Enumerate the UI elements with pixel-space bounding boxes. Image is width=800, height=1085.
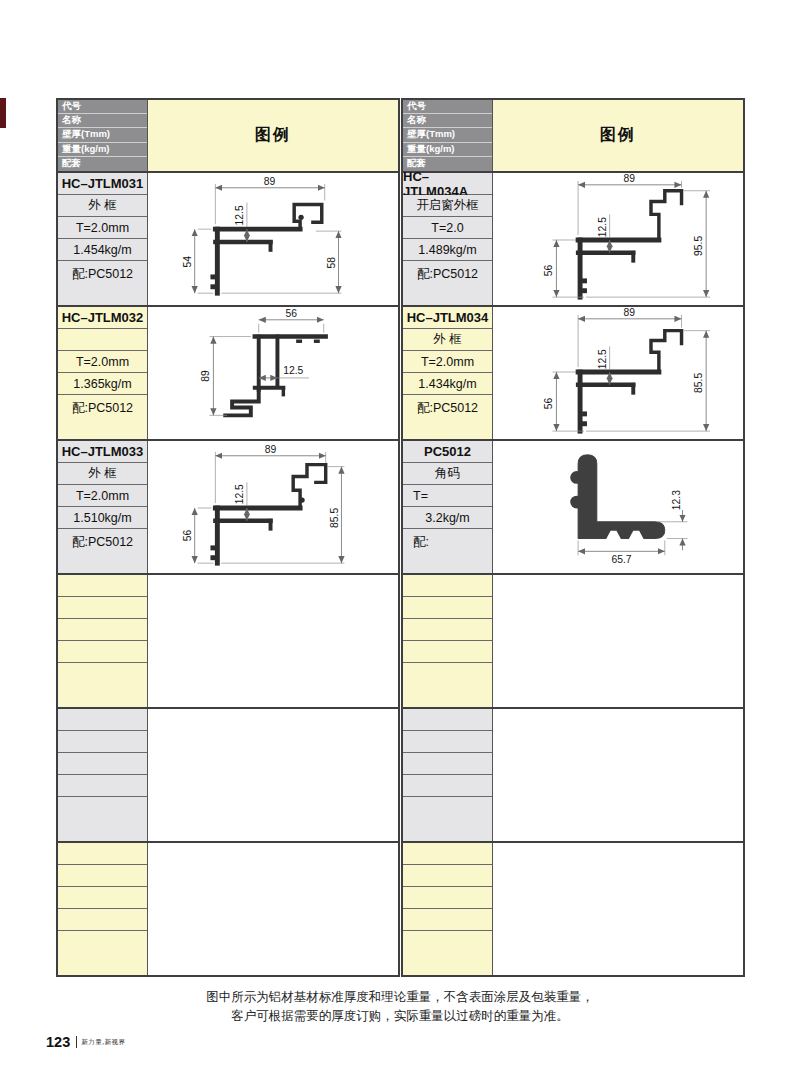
- dim-inner-value: 12.5: [597, 349, 608, 369]
- dim-bottom-value: 65.7: [611, 554, 631, 565]
- dim-top-value: 89: [624, 307, 636, 318]
- footer-divider: [76, 1036, 77, 1048]
- header-row-code: 代号: [58, 100, 147, 114]
- dim-left-value: 89: [200, 370, 211, 382]
- product-weight: 1.454kg/m: [58, 239, 147, 261]
- profile-drawing-hc-jtlm033: 89 56 85.5: [148, 441, 398, 573]
- product-name: 角码: [403, 463, 492, 485]
- empty-block: [58, 707, 398, 841]
- product-match: 配:PC5012: [58, 395, 147, 439]
- product-block-hc-jtlm031: HC–JTLM031 外 框 T=2.0mm 1.454kg/m 配:PC501…: [58, 171, 398, 305]
- profile-drawing-hc-jtlm034a: 89 56 95.5: [493, 173, 743, 305]
- legend-cell: 图例: [148, 100, 398, 171]
- dim-left-value: 56: [543, 265, 554, 277]
- empty-block: [58, 841, 398, 975]
- profile-drawing-hc-jtlm034: 89 56 85.5: [493, 307, 743, 439]
- header-row-code: 代号: [403, 100, 492, 114]
- dim-top-value: 89: [264, 176, 276, 187]
- product-code: HC–JTLM032: [58, 307, 147, 329]
- product-name: 外 框: [58, 195, 147, 217]
- dim-left-value: 56: [543, 398, 554, 410]
- dim-right-value: 95.5: [693, 236, 704, 256]
- profile-drawing-hc-jtlm031: 89 54 58: [148, 173, 398, 305]
- header-row-name: 名称: [58, 114, 147, 128]
- dim-top-value: 89: [265, 444, 277, 455]
- dim-left-value: 56: [182, 530, 193, 542]
- product-name: 外 框: [403, 329, 492, 351]
- product-weight: 3.2kg/m: [403, 507, 492, 529]
- dim-inner-value: 12.5: [234, 484, 245, 504]
- dim-right-value: 85.5: [329, 508, 340, 528]
- product-code: HC–JTLM033: [58, 441, 147, 463]
- product-code: HC–JTLM034A: [403, 173, 492, 195]
- profile-table-right: 代号 名称 壁厚(Tmm) 重量(kg/m) 配套 图例 HC–JTLM034A…: [401, 98, 745, 977]
- product-name: 外 框: [58, 463, 147, 485]
- header-row-thickness: 壁厚(Tmm): [403, 128, 492, 142]
- product-weight: 1.365kg/m: [58, 373, 147, 395]
- page-footer: 123 新力量,新视界: [46, 1034, 126, 1050]
- product-match: 配:PC5012: [58, 529, 147, 573]
- footer-note: 图中所示为铝材基材标准厚度和理论重量，不含表面涂层及包装重量， 客户可根据需要的…: [0, 988, 800, 1027]
- legend-cell: 图例: [493, 100, 743, 171]
- header-row-weight: 重量(kg/m): [58, 143, 147, 157]
- product-thickness: T=2.0mm: [58, 351, 147, 373]
- profile-drawing-pc5012: 65.7 12.3: [493, 441, 743, 573]
- dim-top-value: 89: [624, 173, 636, 184]
- product-weight: 1.434kg/m: [403, 373, 492, 395]
- product-block-hc-jtlm032: HC–JTLM032 T=2.0mm 1.365kg/m 配:PC5012 56: [58, 305, 398, 439]
- footer-note-line2: 客户可根据需要的厚度订购，实际重量以过磅时的重量为准。: [0, 1007, 800, 1026]
- empty-block: [403, 841, 743, 975]
- empty-block: [403, 707, 743, 841]
- product-match: 配:PC5012: [58, 261, 147, 305]
- product-match: 配:PC5012: [403, 261, 492, 305]
- product-thickness: T=2.0: [403, 217, 492, 239]
- product-thickness: T=2.0mm: [403, 351, 492, 373]
- dim-inner-value: 12.5: [597, 217, 608, 237]
- product-block-hc-jtlm034: HC–JTLM034 外 框 T=2.0mm 1.434kg/m 配:PC501…: [403, 305, 743, 439]
- bleed-mark: [0, 98, 6, 128]
- dim-left-value: 54: [182, 256, 193, 268]
- product-name: [58, 329, 147, 351]
- dim-right-value: 58: [326, 257, 337, 269]
- page-number: 123: [46, 1034, 70, 1050]
- product-name: 开启窗外框: [403, 195, 492, 217]
- header-row-weight: 重量(kg/m): [403, 143, 492, 157]
- product-code: PC5012: [403, 441, 492, 463]
- table-header: 代号 名称 壁厚(Tmm) 重量(kg/m) 配套 图例: [403, 100, 743, 171]
- product-thickness: T=2.0mm: [58, 217, 147, 239]
- profile-drawing-hc-jtlm032: 56 89 12.5: [148, 307, 398, 439]
- profile-table-left: 代号 名称 壁厚(Tmm) 重量(kg/m) 配套 图例 HC–JTLM031 …: [56, 98, 400, 977]
- dim-right-value: 85.5: [693, 373, 704, 393]
- brand-slogan: 新力量,新视界: [81, 1038, 125, 1047]
- product-thickness: T=: [403, 485, 492, 507]
- empty-block: [403, 573, 743, 707]
- dim-top-value: 56: [285, 308, 297, 319]
- product-weight: 1.489kg/m: [403, 239, 492, 261]
- product-match: 配:: [403, 529, 492, 573]
- product-code: HC–JTLM031: [58, 173, 147, 195]
- header-row-thickness: 壁厚(Tmm): [58, 128, 147, 142]
- dim-inner-value: 12.5: [283, 365, 303, 376]
- empty-block: [58, 573, 398, 707]
- product-code: HC–JTLM034: [403, 307, 492, 329]
- header-row-match: 配套: [58, 157, 147, 171]
- product-thickness: T=2.0mm: [58, 485, 147, 507]
- dim-right-value: 12.3: [671, 490, 682, 510]
- product-block-hc-jtlm034a: HC–JTLM034A 开启窗外框 T=2.0 1.489kg/m 配:PC50…: [403, 171, 743, 305]
- dim-inner-value: 12.5: [234, 205, 245, 225]
- header-row-name: 名称: [403, 114, 492, 128]
- product-block-pc5012: PC5012 角码 T= 3.2kg/m 配: 65.7: [403, 439, 743, 573]
- product-weight: 1.510kg/m: [58, 507, 147, 529]
- table-header: 代号 名称 壁厚(Tmm) 重量(kg/m) 配套 图例: [58, 100, 398, 171]
- product-match: 配:PC5012: [403, 395, 492, 439]
- product-block-hc-jtlm033: HC–JTLM033 外 框 T=2.0mm 1.510kg/m 配:PC501…: [58, 439, 398, 573]
- footer-note-line1: 图中所示为铝材基材标准厚度和理论重量，不含表面涂层及包装重量，: [0, 988, 800, 1007]
